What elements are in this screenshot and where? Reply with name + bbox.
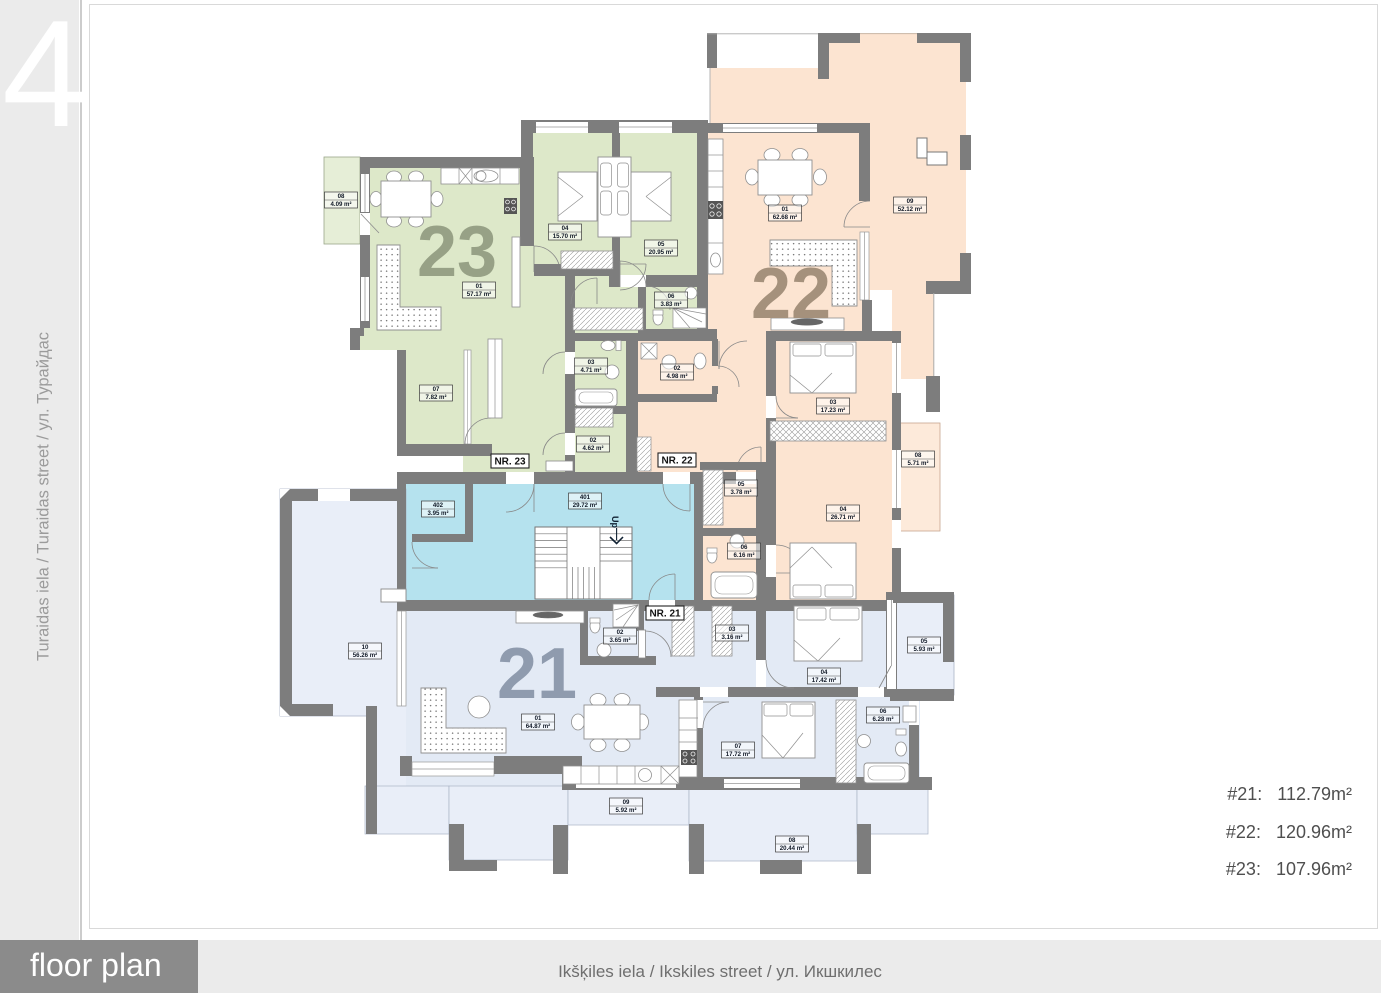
svg-text:09: 09 bbox=[623, 799, 630, 806]
svg-text:17.72 m²: 17.72 m² bbox=[726, 751, 750, 758]
svg-text:02: 02 bbox=[674, 365, 681, 372]
svg-text:3.65 m²: 3.65 m² bbox=[609, 637, 630, 644]
svg-text:10: 10 bbox=[362, 644, 369, 651]
svg-text:26.71 m²: 26.71 m² bbox=[831, 514, 855, 521]
svg-text:4.09 m²: 4.09 m² bbox=[330, 201, 351, 208]
svg-text:6.28 m²: 6.28 m² bbox=[872, 716, 893, 723]
svg-text:21: 21 bbox=[497, 634, 577, 714]
svg-text:20.44 m²: 20.44 m² bbox=[780, 845, 804, 852]
svg-text:3.78 m²: 3.78 m² bbox=[730, 489, 751, 496]
svg-text:23: 23 bbox=[417, 212, 497, 292]
svg-text:64.87 m²: 64.87 m² bbox=[526, 723, 550, 730]
svg-text:03: 03 bbox=[588, 359, 595, 366]
svg-text:5.92 m²: 5.92 m² bbox=[615, 807, 636, 814]
svg-text:NR. 22: NR. 22 bbox=[661, 456, 693, 467]
svg-text:56.26 m²: 56.26 m² bbox=[353, 652, 377, 659]
svg-text:5.71 m²: 5.71 m² bbox=[907, 460, 928, 467]
svg-text:3.83 m²: 3.83 m² bbox=[660, 301, 681, 308]
svg-text:4.71 m²: 4.71 m² bbox=[580, 367, 601, 374]
svg-text:6.16 m²: 6.16 m² bbox=[733, 552, 754, 559]
svg-text:3.16 m²: 3.16 m² bbox=[721, 634, 742, 641]
svg-text:15.70 m²: 15.70 m² bbox=[553, 233, 577, 240]
svg-text:01: 01 bbox=[535, 715, 542, 722]
svg-text:401: 401 bbox=[580, 494, 591, 501]
svg-text:07: 07 bbox=[433, 386, 440, 393]
svg-text:08: 08 bbox=[338, 193, 345, 200]
svg-text:05: 05 bbox=[738, 481, 745, 488]
svg-text:Up: Up bbox=[610, 516, 620, 528]
svg-text:3.95 m²: 3.95 m² bbox=[427, 510, 448, 517]
svg-text:04: 04 bbox=[562, 225, 569, 232]
svg-text:07: 07 bbox=[735, 743, 742, 750]
svg-text:05: 05 bbox=[658, 241, 665, 248]
svg-text:06: 06 bbox=[741, 544, 748, 551]
svg-text:04: 04 bbox=[840, 506, 847, 513]
svg-text:4.62 m²: 4.62 m² bbox=[582, 445, 603, 452]
svg-text:57.17 m²: 57.17 m² bbox=[467, 291, 491, 298]
svg-text:52.12 m²: 52.12 m² bbox=[898, 206, 922, 213]
svg-text:62.68 m²: 62.68 m² bbox=[773, 214, 797, 221]
svg-text:NR. 21: NR. 21 bbox=[649, 609, 681, 620]
svg-text:05: 05 bbox=[921, 638, 928, 645]
svg-text:08: 08 bbox=[915, 452, 922, 459]
svg-text:7.82 m²: 7.82 m² bbox=[425, 394, 446, 401]
svg-text:06: 06 bbox=[668, 293, 675, 300]
svg-text:04: 04 bbox=[821, 669, 828, 676]
svg-text:17.42 m²: 17.42 m² bbox=[812, 677, 836, 684]
svg-text:09: 09 bbox=[907, 198, 914, 205]
svg-text:08: 08 bbox=[789, 837, 796, 844]
svg-text:02: 02 bbox=[590, 437, 597, 444]
svg-text:22: 22 bbox=[751, 254, 831, 334]
svg-text:402: 402 bbox=[433, 502, 444, 509]
svg-text:5.93 m²: 5.93 m² bbox=[913, 646, 934, 653]
svg-text:01: 01 bbox=[782, 206, 789, 213]
svg-text:NR. 23: NR. 23 bbox=[494, 457, 526, 468]
svg-text:06: 06 bbox=[880, 708, 887, 715]
svg-text:17.23 m²: 17.23 m² bbox=[821, 407, 845, 414]
svg-text:20.95 m²: 20.95 m² bbox=[649, 249, 673, 256]
svg-text:4.98 m²: 4.98 m² bbox=[666, 373, 687, 380]
svg-text:03: 03 bbox=[830, 399, 837, 406]
svg-text:01: 01 bbox=[476, 283, 483, 290]
svg-text:03: 03 bbox=[729, 626, 736, 633]
svg-text:02: 02 bbox=[617, 629, 624, 636]
svg-text:29.72 m²: 29.72 m² bbox=[573, 502, 597, 509]
